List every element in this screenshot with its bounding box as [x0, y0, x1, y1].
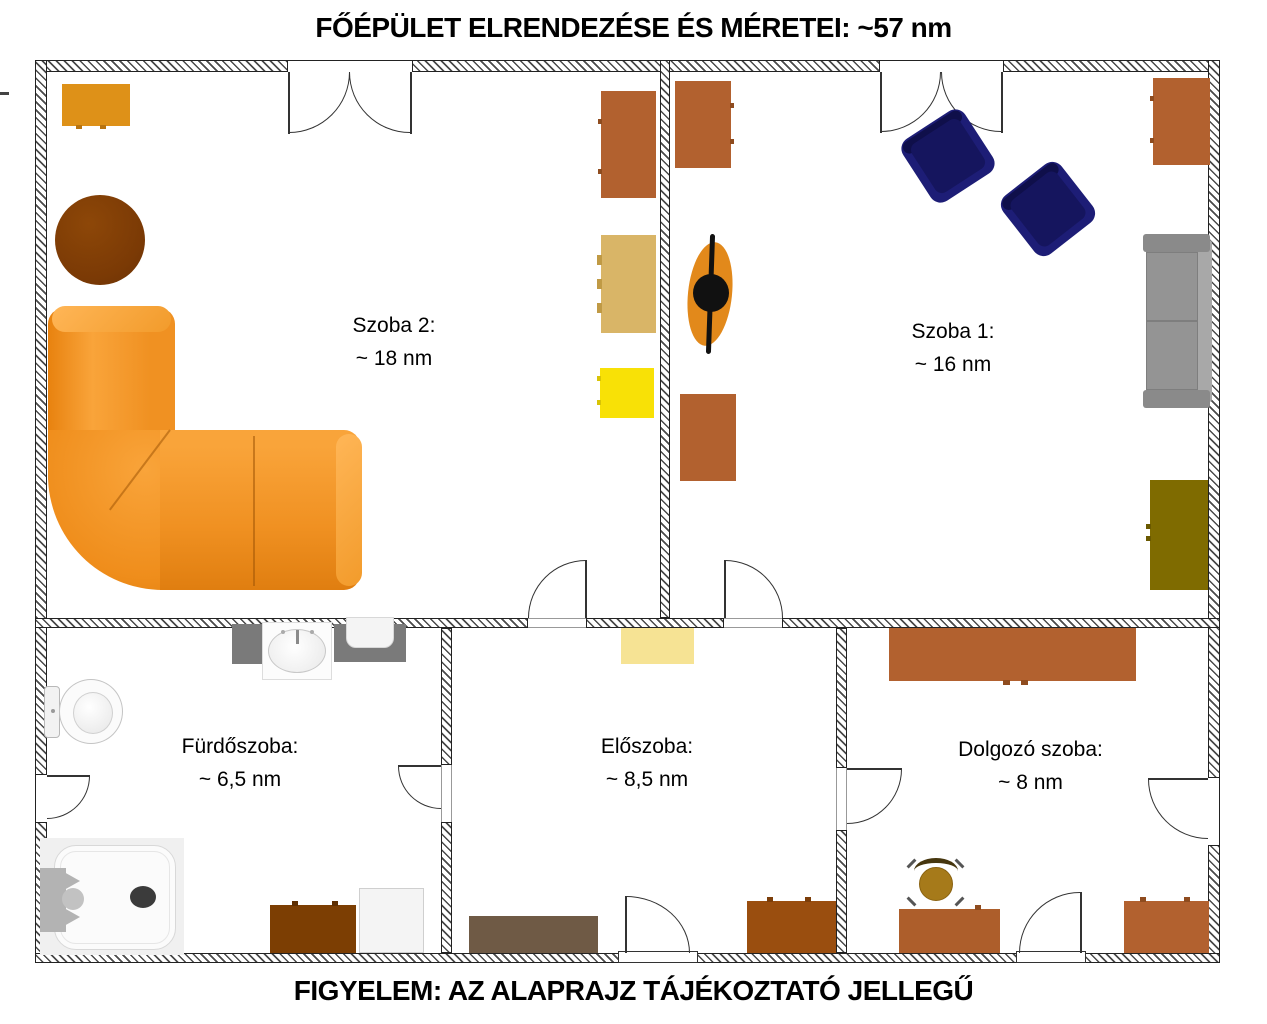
- double-door-szoba2-leaf-right: [410, 72, 412, 134]
- floor-plan: FŐÉPÜLET ELRENDEZÉSE ÉS MÉRETEI: ~57 nm …: [0, 0, 1267, 1024]
- room-area: ~ 8,5 nm: [567, 764, 727, 797]
- toilet: [44, 679, 124, 745]
- room-area: ~ 6,5 nm: [160, 764, 320, 797]
- wall-right-a: [1208, 60, 1220, 778]
- opening-hall-study: [836, 768, 847, 830]
- wall-top-a: [35, 60, 288, 72]
- double-door-szoba2-arc-left: [289, 72, 350, 133]
- sofa-gray: [1143, 234, 1212, 408]
- dresser-tan: [601, 235, 656, 333]
- wall-bottom-b: [697, 953, 1019, 963]
- shelf-pale-yellow: [621, 628, 694, 664]
- wall-bottom-c: [1083, 953, 1220, 963]
- room-area: ~ 18 nm: [329, 343, 459, 376]
- wall-hall-study-b: [836, 830, 847, 953]
- decor-plant-orange: [688, 238, 734, 350]
- room-name: Szoba 2:: [329, 310, 459, 343]
- round-table-brown: [55, 195, 145, 285]
- opening-top-szoba1: [880, 60, 1003, 72]
- room-name: Dolgozó szoba:: [928, 734, 1133, 767]
- desk-sienna: [899, 909, 1000, 953]
- cabinet-sienna-bottom: [680, 394, 736, 481]
- cabinet-olive: [1150, 480, 1208, 590]
- shower-drain: [130, 886, 156, 908]
- opening-szoba1-hall: [724, 618, 782, 628]
- label-szoba1: Szoba 1: ~ 16 nm: [888, 316, 1018, 381]
- cabinet-chestnut: [747, 901, 836, 953]
- room-name: Fürdőszoba:: [160, 731, 320, 764]
- wall-top-c: [1003, 60, 1220, 72]
- nightstand-yellow: [600, 368, 654, 418]
- dresser-sienna-right: [1153, 78, 1210, 165]
- room-name: Szoba 1:: [888, 316, 1018, 349]
- edge-mark: [0, 92, 9, 95]
- office-chair: [904, 856, 968, 912]
- wall-right-b: [1208, 845, 1220, 963]
- label-szoba2: Szoba 2: ~ 18 nm: [329, 310, 459, 375]
- cabinet-gray: [232, 624, 262, 664]
- armchair-navy-2: [996, 157, 1100, 261]
- wall-bath-hall-a: [441, 628, 452, 765]
- wall-mid-horizontal-c: [782, 618, 1220, 628]
- door-bath-left-arc: [47, 776, 90, 819]
- wardrobe-sienna-wide: [889, 628, 1136, 681]
- room-area: ~ 16 nm: [888, 349, 1018, 382]
- door-szoba1-arc: [725, 560, 783, 618]
- opening-bath-hall: [441, 765, 452, 822]
- page-title: FŐÉPÜLET ELRENDEZÉSE ÉS MÉRETEI: ~57 nm: [0, 12, 1267, 44]
- cabinet-dark-brown: [270, 905, 356, 953]
- double-door-szoba2-arc-right: [349, 72, 410, 133]
- door-study-hall-arc: [847, 769, 902, 824]
- cabinet-sienna-top: [675, 81, 731, 168]
- double-door-szoba1-leaf-right: [1001, 72, 1003, 133]
- entrance-door-arc: [626, 896, 690, 953]
- study-door-arc: [1019, 892, 1080, 953]
- wardrobe-sienna: [601, 91, 656, 198]
- bench-taupe: [469, 916, 598, 953]
- wall-bath-hall-b: [441, 822, 452, 953]
- study-door-leaf: [1080, 892, 1082, 953]
- sink: [262, 622, 332, 680]
- cabinet-white: [359, 888, 424, 953]
- opening-right-study: [1208, 778, 1220, 845]
- wall-top-b: [412, 60, 880, 72]
- washing-machine: [334, 624, 406, 662]
- label-dolgozoszoba: Dolgozó szoba: ~ 8 nm: [928, 734, 1133, 799]
- shower-tray: [40, 838, 184, 955]
- door-study-right-arc: [1148, 779, 1208, 839]
- wall-left-a: [35, 60, 47, 775]
- opening-szoba2-hall: [528, 618, 586, 628]
- label-eloszoba: Előszoba: ~ 8,5 nm: [567, 731, 727, 796]
- wall-mid-vertical: [660, 60, 670, 618]
- door-szoba2-arc: [528, 560, 586, 618]
- wall-hall-study-a: [836, 628, 847, 768]
- orange-dresser: [62, 84, 130, 126]
- opening-top-szoba2: [288, 60, 412, 72]
- footer-note: FIGYELEM: AZ ALAPRAJZ TÁJÉKOZTATÓ JELLEG…: [0, 975, 1267, 1007]
- door-bath-hall-arc: [398, 766, 441, 809]
- wall-mid-horizontal-b: [586, 618, 724, 628]
- label-furdoszoba: Fürdőszoba: ~ 6,5 nm: [160, 731, 320, 796]
- cabinet-sienna-br: [1124, 901, 1209, 953]
- room-area: ~ 8 nm: [928, 767, 1133, 800]
- opening-left-bath: [35, 775, 47, 822]
- room-name: Előszoba:: [567, 731, 727, 764]
